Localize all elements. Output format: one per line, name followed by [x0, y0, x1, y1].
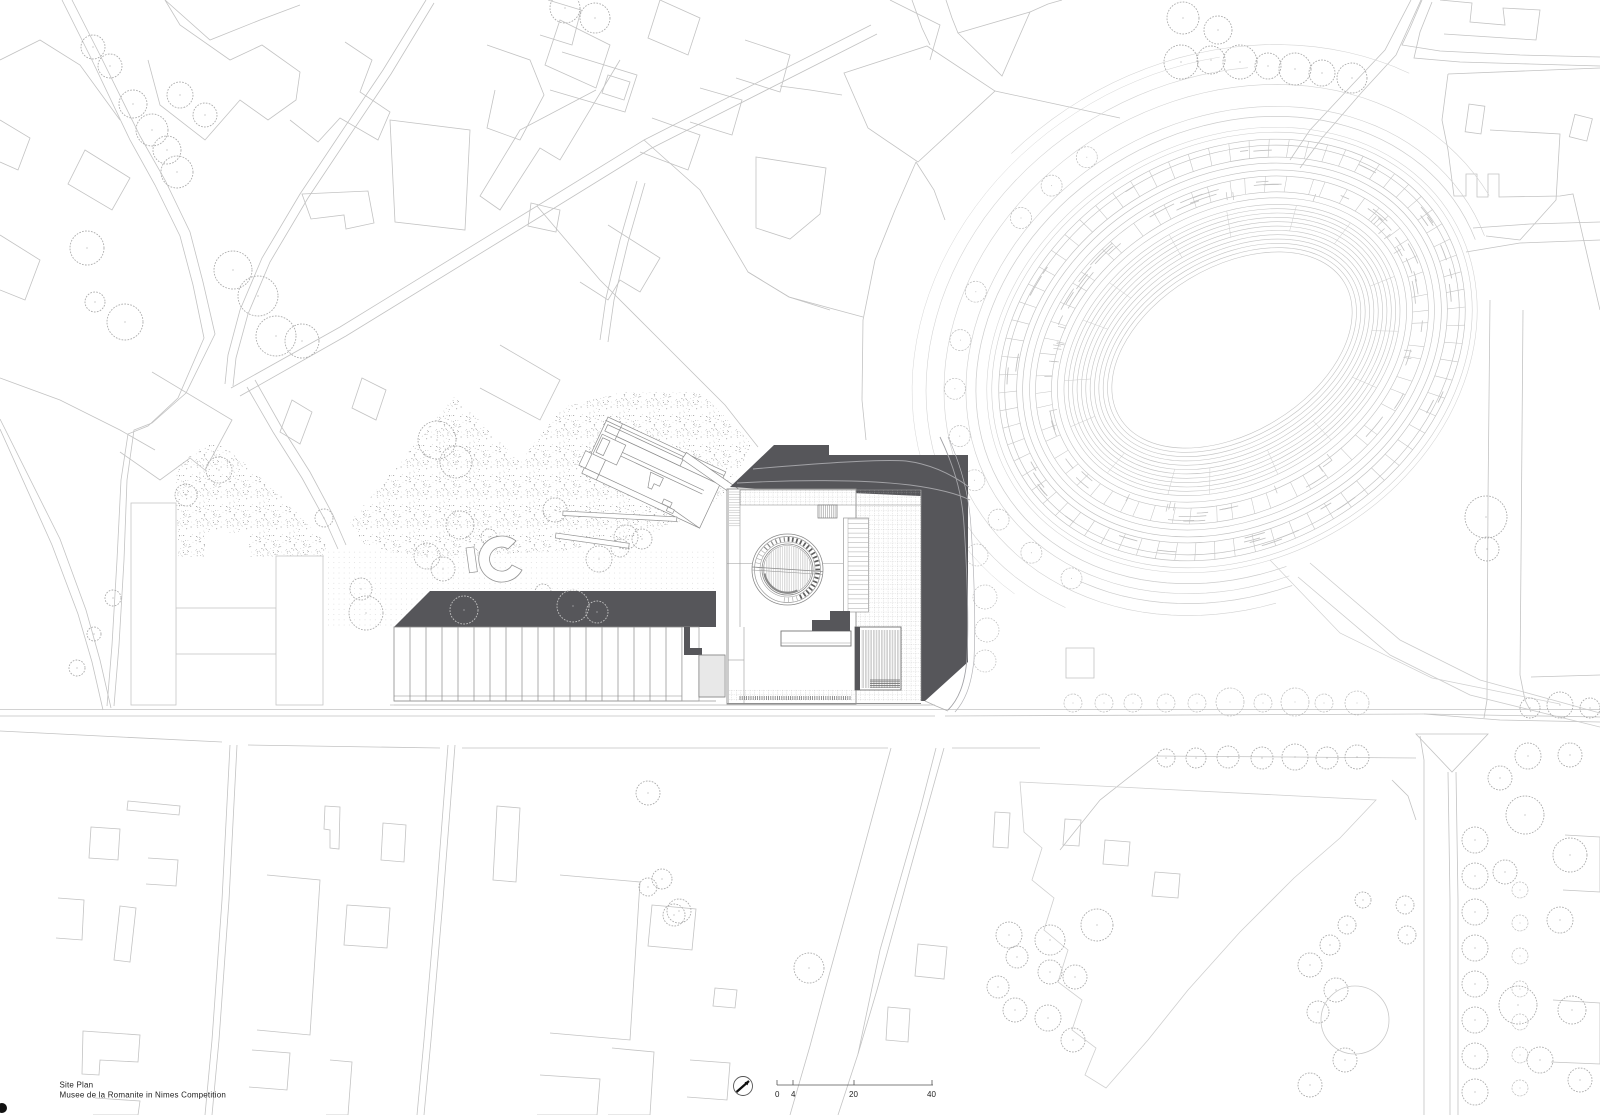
svg-text:Musee de la Romanite in Nimes: Musee de la Romanite in Nimes Competitio… — [60, 1091, 227, 1100]
svg-text:0: 0 — [775, 1090, 780, 1099]
svg-text:40: 40 — [927, 1090, 936, 1099]
svg-text:Site Plan: Site Plan — [60, 1081, 94, 1090]
svg-text:4: 4 — [791, 1090, 796, 1099]
svg-text:20: 20 — [849, 1090, 858, 1099]
